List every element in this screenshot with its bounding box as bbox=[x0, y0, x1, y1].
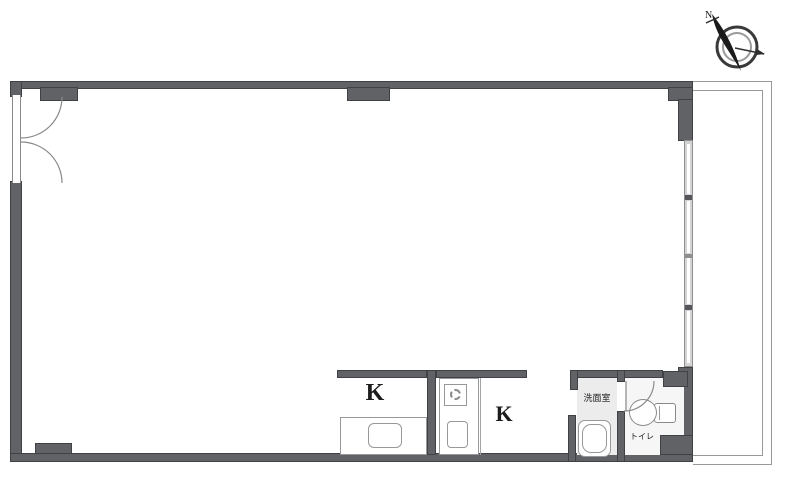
compass-icon: N bbox=[702, 6, 770, 76]
entrance-door-arc-top bbox=[21, 97, 62, 138]
toilet-door-arc bbox=[624, 381, 654, 411]
door-swings bbox=[0, 0, 787, 481]
entrance-door-arc-bottom bbox=[21, 142, 62, 183]
compass-east-arrowhead bbox=[756, 49, 765, 55]
compass-north-label: N bbox=[705, 10, 712, 21]
floor-plan: K K 洗面室 トイレ N bbox=[0, 0, 787, 481]
